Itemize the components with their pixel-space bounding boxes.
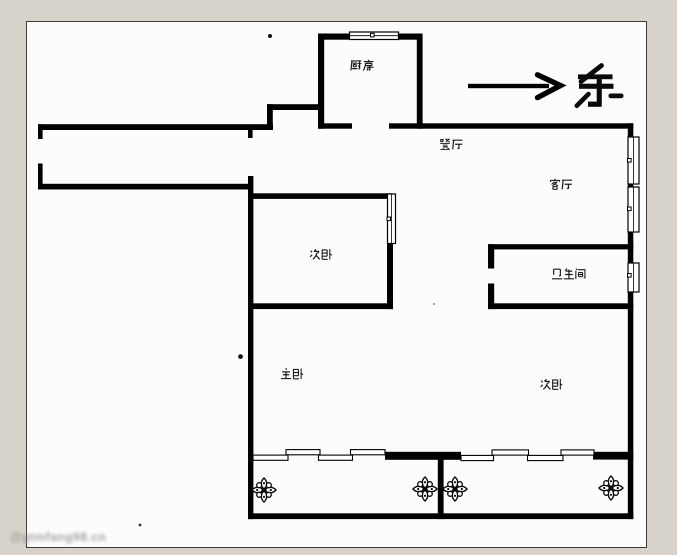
svg-text:@gtmfang98.cn: @gtmfang98.cn — [10, 530, 106, 544]
